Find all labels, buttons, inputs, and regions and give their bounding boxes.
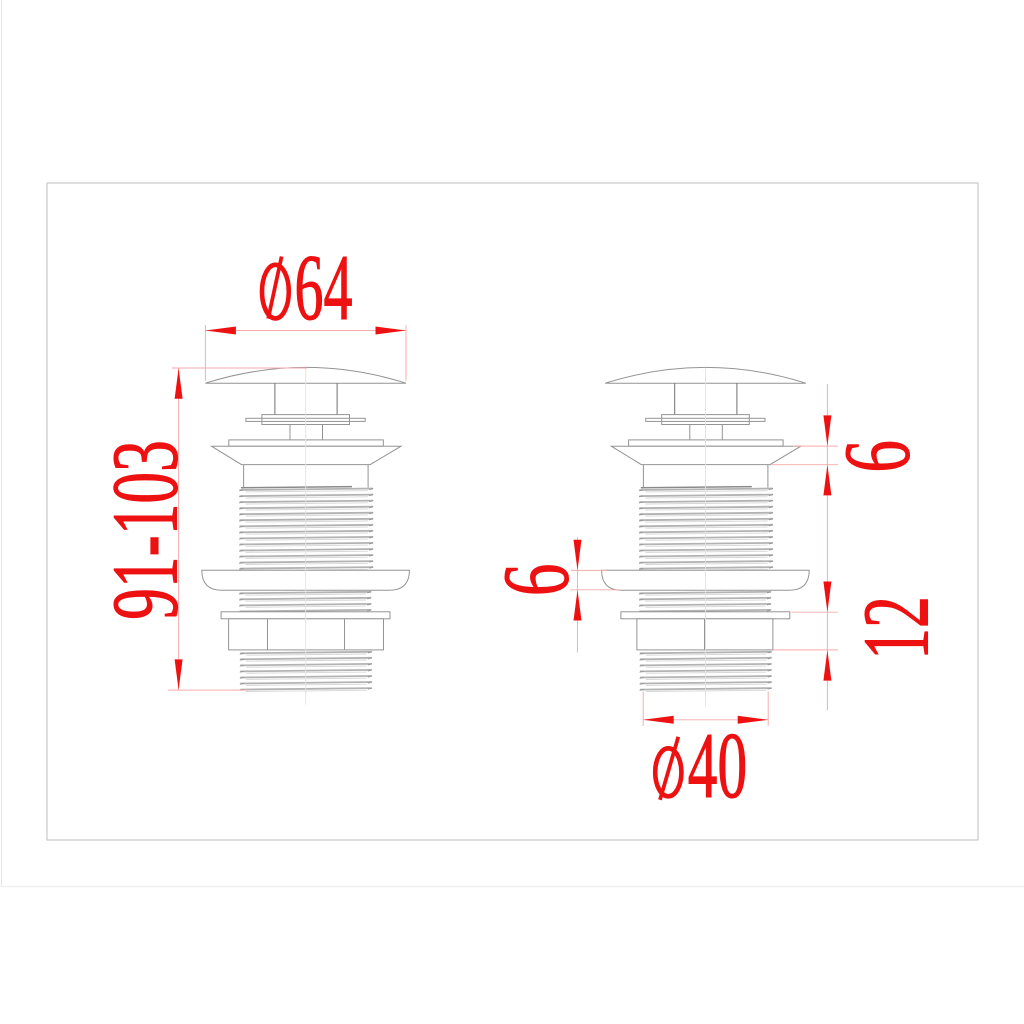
svg-text:6: 6 — [826, 440, 930, 472]
svg-text:40: 40 — [688, 714, 747, 818]
svg-text:12: 12 — [845, 596, 949, 660]
svg-text:91-103: 91-103 — [94, 440, 198, 620]
svg-text:64: 64 — [295, 236, 353, 340]
svg-text:6: 6 — [485, 564, 589, 596]
